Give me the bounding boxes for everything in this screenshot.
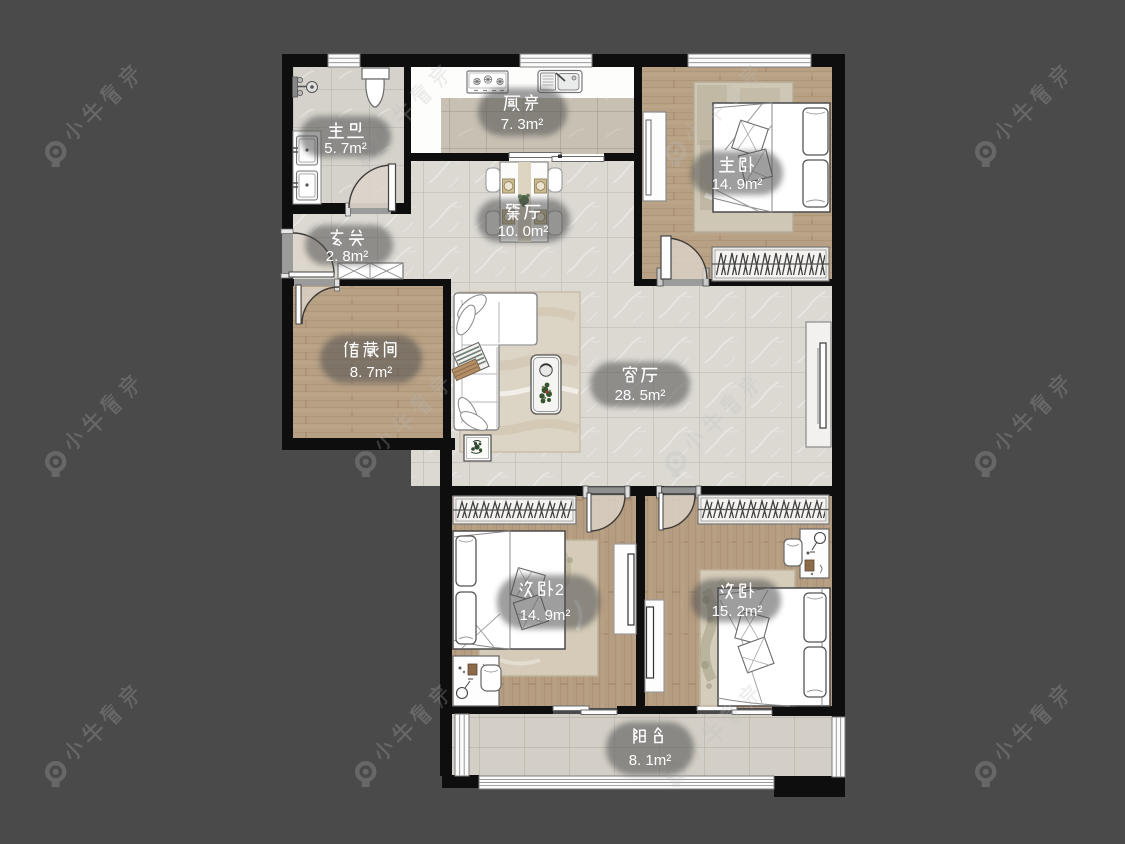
svg-text:28. 5m²: 28. 5m² [615, 387, 666, 404]
svg-text:14. 9m²: 14. 9m² [520, 607, 571, 624]
svg-text:7. 3m²: 7. 3m² [501, 116, 544, 133]
svg-text:10. 0m²: 10. 0m² [498, 223, 549, 240]
svg-text:2. 8m²: 2. 8m² [326, 248, 369, 265]
svg-text:14. 9m²: 14. 9m² [712, 176, 763, 193]
svg-text:5. 7m²: 5. 7m² [324, 140, 367, 157]
svg-text:15. 2m²: 15. 2m² [712, 603, 763, 620]
svg-text:8. 1m²: 8. 1m² [629, 752, 672, 769]
svg-text:2: 2 [555, 582, 564, 599]
svg-text:8. 7m²: 8. 7m² [350, 364, 393, 381]
